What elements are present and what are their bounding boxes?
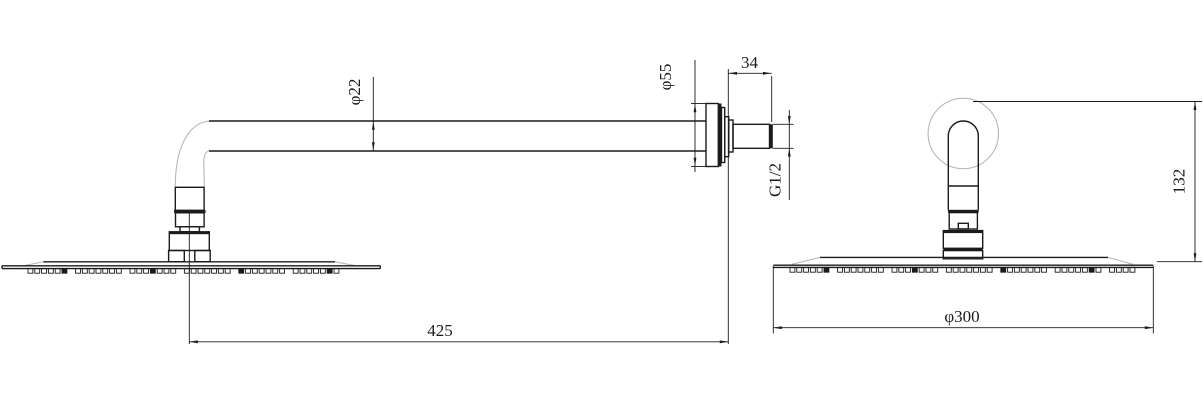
label-arm-length: 425 — [427, 321, 453, 340]
dim-arm-length — [189, 340, 728, 343]
nozzle-row-front-view — [790, 267, 1135, 272]
dim-wall-offset — [728, 69, 771, 344]
dimension-labels: φ22 φ55 34 G1/2 425 φ300 132 — [345, 53, 1189, 340]
shower-head-technical-drawing: φ22 φ55 34 G1/2 425 φ300 132 — [0, 0, 1204, 419]
side-view — [2, 104, 773, 345]
label-head-diameter: φ300 — [944, 307, 979, 326]
escutcheon-circle — [928, 98, 998, 168]
label-thread: G1/2 — [766, 163, 785, 197]
label-drop-height: 132 — [1170, 169, 1189, 195]
label-arm-diameter: φ22 — [345, 79, 364, 106]
shower-head-side — [2, 262, 380, 273]
dim-arm-diameter — [372, 77, 375, 151]
wall-flange-assembly — [706, 104, 773, 167]
connector-stack-front — [943, 210, 982, 259]
arm-front — [948, 121, 978, 210]
shower-head-front — [773, 257, 1153, 272]
dim-drop-height — [973, 102, 1202, 262]
dim-escutcheon-diameter — [691, 60, 707, 172]
shower-arm-tube — [209, 121, 706, 151]
arm-elbow-curve — [175, 121, 209, 187]
label-wall-offset: 34 — [741, 53, 759, 72]
label-escutcheon-diameter: φ55 — [656, 64, 675, 91]
drawing-canvas: φ22 φ55 34 G1/2 425 φ300 132 — [0, 0, 1204, 419]
front-view — [773, 98, 1153, 272]
